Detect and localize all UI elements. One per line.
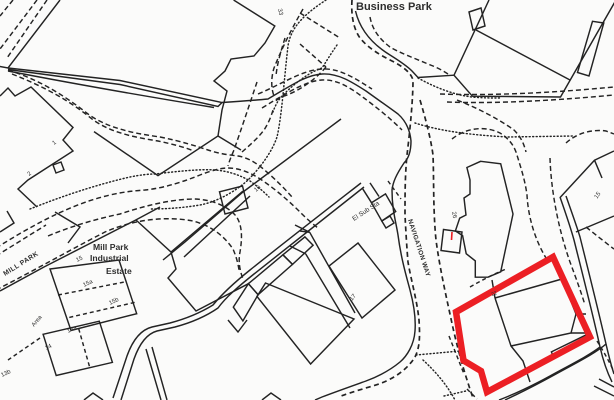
svg-text:Business Park: Business Park (356, 1, 433, 13)
svg-text:17: 17 (349, 293, 358, 302)
svg-text:15: 15 (594, 191, 603, 200)
svg-text:2: 2 (27, 171, 33, 178)
svg-text:Estate: Estate (106, 266, 132, 276)
svg-text:15b: 15b (108, 297, 120, 307)
svg-text:Area: Area (31, 314, 44, 328)
svg-text:15: 15 (75, 255, 84, 264)
svg-text:MILL PARK: MILL PARK (2, 251, 40, 278)
svg-text:13b: 13b (0, 369, 12, 379)
svg-text:Industrial: Industrial (90, 253, 129, 263)
svg-text:33: 33 (276, 8, 283, 16)
svg-text:Mill Park: Mill Park (93, 242, 129, 252)
svg-text:26: 26 (450, 211, 457, 219)
svg-text:15a: 15a (82, 279, 94, 289)
svg-text:1: 1 (52, 140, 58, 147)
svg-text:16: 16 (253, 184, 262, 193)
